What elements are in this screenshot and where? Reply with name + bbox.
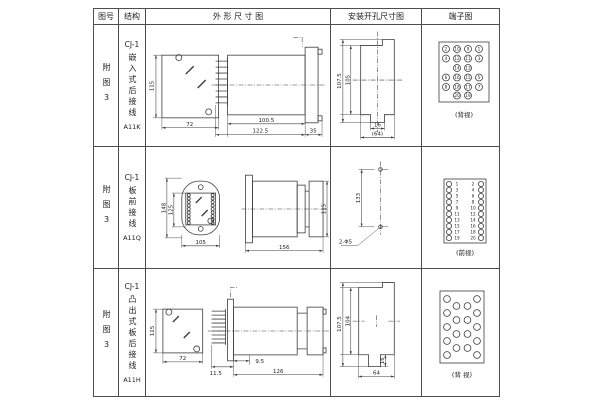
terminal-number: 16	[470, 223, 476, 228]
header-cell-mounting: 安装开孔尺寸图	[331, 9, 422, 25]
terminal-number: 14	[470, 217, 476, 222]
view-caption: (背 视)	[452, 370, 472, 379]
row3-figure-cell: 附图3	[94, 269, 119, 396]
terminal-drawing-a11q: 1 3 5 7 9 11 13 15 17 19 2 4 6 8 10 12 1…	[422, 147, 499, 269]
header-label: 结构	[124, 11, 140, 22]
row2-structure-cell: CJ-1 板前接线 A11Q	[119, 147, 146, 269]
figure-number: 附图3	[102, 310, 110, 356]
terminal-number: 1	[456, 181, 459, 186]
front-view: 148 125 105	[161, 178, 219, 248]
terminal-number: 4	[445, 56, 448, 61]
terminal-number: 19	[465, 93, 471, 98]
terminal-number: 12	[454, 56, 460, 61]
terminal-number: 20	[454, 93, 460, 98]
dim-slot-width: 16	[374, 122, 381, 128]
terminal-number: 13	[465, 65, 471, 70]
dim-side-flange: 35	[310, 128, 317, 134]
terminal-number: 3	[456, 187, 459, 192]
view-caption: (前视)	[456, 248, 474, 257]
terminal-number: 15	[454, 223, 460, 228]
terminal-number: 9	[456, 205, 459, 210]
dim-side-total: 122.5	[253, 128, 269, 134]
row1-mounting-cell: 107.5 105 16 (64)	[331, 25, 422, 147]
model-label: CJ-1	[125, 40, 140, 49]
terminal-number: 8	[472, 199, 475, 204]
header-label: 外 形 尺 寸 图	[213, 11, 263, 22]
row1-terminal-cell: 2 4 6 8 10 12 14 16 18 20 9 11 13 15 17 …	[422, 25, 499, 147]
terminal-number: 7	[456, 199, 459, 204]
terminal-number: 3	[478, 56, 481, 61]
terminal-number: 8	[445, 84, 448, 89]
terminal-number: 11	[465, 56, 471, 61]
terminal-number: 13	[454, 217, 460, 222]
dim-inner-height: 105	[345, 74, 351, 84]
dim-overall-width: 64	[373, 371, 380, 377]
structure-type: 嵌入式后接线	[128, 53, 136, 119]
terminal-number: 2	[472, 181, 475, 186]
dim-side-body: 100.5	[259, 117, 275, 123]
terminal-number: 2	[445, 46, 448, 51]
terminal-number: 5	[478, 75, 481, 80]
dim-side-length: 126	[273, 369, 284, 375]
header-cell-outline: 外 形 尺 寸 图	[146, 9, 331, 25]
mounting-drawing-a11q: 133 2-Φ5	[331, 147, 421, 269]
dim-front-width: 72	[179, 356, 186, 362]
side-view: 100.5 122.5 35	[212, 37, 326, 136]
header-cell-structure: 结构	[119, 9, 146, 25]
terminal-number: 10	[454, 46, 460, 51]
header-label: 安装开孔尺寸图	[348, 11, 404, 22]
row3-outline-cell: 115 72 9.5 11.5	[146, 269, 331, 396]
header-cell-terminal: 端子图	[422, 9, 499, 25]
terminal-number: 18	[454, 84, 460, 89]
row3-terminal-cell: (背 视)	[422, 269, 499, 396]
dim-overall-width: (64)	[372, 131, 383, 137]
row1-outline-cell: 115 72 100.5 122.5 35	[146, 25, 331, 147]
terminal-number: 20	[470, 235, 476, 240]
dim-outer-height: 107.5	[337, 73, 343, 89]
side-view: 156 115	[241, 175, 329, 253]
row2-outline-cell: 148 125 105 156 115	[146, 147, 331, 269]
dim-side-comb: 11.5	[210, 371, 222, 377]
spec-table: 图号 结构 外 形 尺 寸 图 安装开孔尺寸图 端子图 附图3 CJ-1 嵌入式…	[93, 8, 500, 397]
figure-number: 附图3	[102, 185, 110, 231]
terminal-circles: 2 4 6 8 10 12 14 16 18 20 9 11 13 15 17 …	[443, 45, 483, 99]
dim-front-height: 115	[150, 326, 156, 336]
figure-number: 附图3	[102, 63, 110, 109]
mounting-drawing-a11h: 107.5 104 16 64	[331, 269, 421, 396]
front-view: 115 72	[150, 309, 203, 364]
row3-structure-cell: CJ-1 凸出式板后接线 A11H	[119, 269, 146, 396]
dim-side-length: 156	[279, 244, 290, 250]
mounting-drawing-a11k: 107.5 105 16 (64)	[331, 25, 421, 147]
terminal-circles: 1 3 5 7 9 11 13 15 17 19 2 4 6 8 10 12 1…	[446, 181, 483, 240]
terminal-circles	[444, 296, 481, 359]
row2-figure-cell: 附图3	[94, 147, 119, 269]
terminal-drawing-a11k: 2 4 6 8 10 12 14 16 18 20 9 11 13 15 17 …	[422, 25, 499, 147]
terminal-drawing-a11h: (背 视)	[422, 269, 499, 396]
view-caption: (背视)	[455, 110, 473, 119]
terminal-number: 1	[478, 46, 481, 51]
structure-type: 凸出式板后接线	[128, 295, 136, 372]
terminal-number: 6	[472, 193, 475, 198]
front-view: 115 72	[149, 54, 218, 129]
terminal-number: 4	[472, 187, 475, 192]
terminal-number: 10	[470, 205, 476, 210]
hole-label: 2-Φ5	[339, 239, 352, 245]
terminal-number: 5	[456, 193, 459, 198]
dim-front-width: 105	[195, 239, 205, 245]
outline-drawing-a11k: 115 72 100.5 122.5 35	[146, 25, 330, 147]
header-cell-figure-no: 图号	[94, 9, 119, 25]
structure-code: A11Q	[123, 234, 141, 242]
outline-drawing-a11q: 148 125 105 156 115	[146, 147, 330, 269]
terminal-number: 15	[465, 75, 471, 80]
header-label: 端子图	[449, 11, 473, 22]
terminal-number: 6	[445, 75, 448, 80]
structure-type: 板前接线	[128, 186, 136, 230]
terminal-number: 14	[454, 65, 460, 70]
model-label: CJ-1	[125, 282, 140, 291]
header-label: 图号	[98, 11, 114, 22]
terminal-number: 11	[454, 211, 460, 216]
terminal-number: 19	[454, 235, 460, 240]
terminal-number: 9	[467, 46, 470, 51]
dim-inner-height: 104	[345, 315, 351, 326]
dim-front-outer-height: 148	[161, 202, 167, 213]
dim-front-height: 115	[149, 80, 155, 90]
row3-mounting-cell: 107.5 104 16 64	[331, 269, 422, 396]
mounting-holes	[359, 161, 389, 234]
dim-outer-height: 107.5	[337, 316, 343, 332]
dim-front-width: 72	[186, 121, 193, 127]
model-label: CJ-1	[125, 173, 140, 182]
row1-structure-cell: CJ-1 嵌入式后接线 A11K	[119, 25, 146, 147]
terminal-number: 17	[454, 229, 460, 234]
row1-figure-cell: 附图3	[94, 25, 119, 147]
dim-side-offset: 9.5	[255, 359, 264, 365]
outline-drawing-a11h: 115 72 9.5 11.5	[146, 269, 330, 396]
dim-tab-height: 16	[380, 357, 386, 364]
terminal-number: 7	[478, 84, 481, 89]
dim-side-height: 115	[322, 203, 328, 213]
row2-mounting-cell: 133 2-Φ5	[331, 147, 422, 269]
row2-terminal-cell: 1 3 5 7 9 11 13 15 17 19 2 4 6 8 10 12 1…	[422, 147, 499, 269]
terminal-number: 17	[465, 84, 471, 89]
dim-hole-spacing: 133	[356, 192, 362, 203]
dim-front-inner-height: 125	[168, 204, 174, 214]
structure-code: A11K	[124, 123, 141, 131]
side-view: 9.5 11.5 126	[208, 287, 329, 377]
structure-code: A11H	[123, 376, 141, 384]
terminal-number: 12	[470, 211, 476, 216]
terminal-number: 18	[470, 229, 476, 234]
terminal-number: 16	[454, 75, 460, 80]
